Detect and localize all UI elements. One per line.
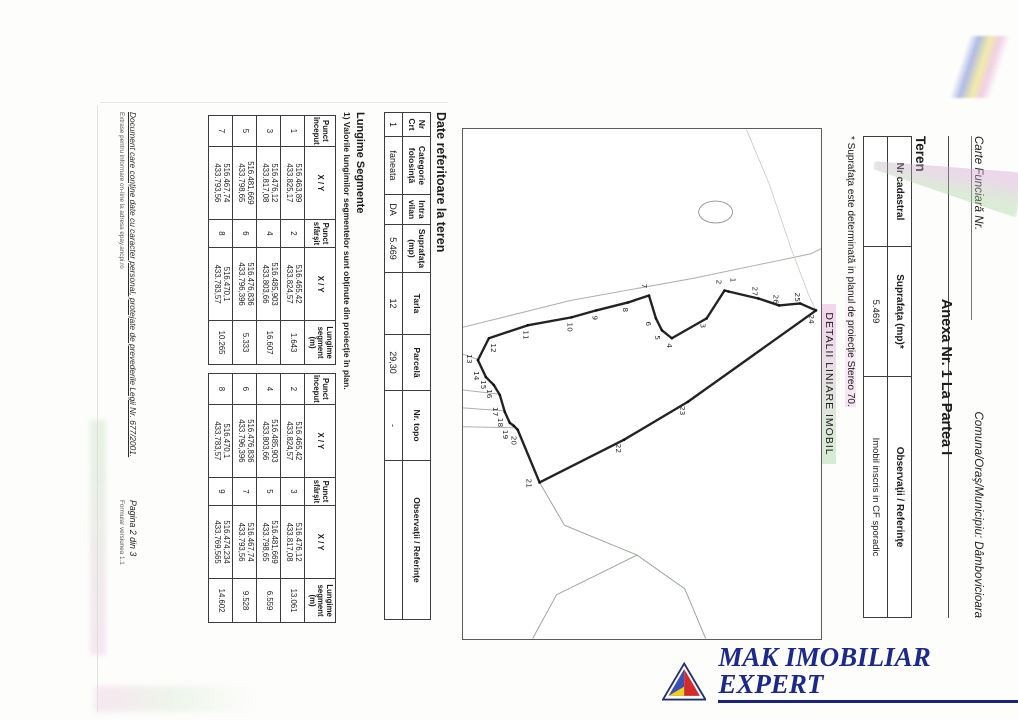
cell-nr-cadastral xyxy=(864,137,888,247)
parcel-boundary-line xyxy=(540,482,706,638)
annex-title: Anexa Nr. 1 La Partea I xyxy=(938,136,954,618)
vertex-point xyxy=(623,438,626,441)
segment-tables: Punct început X / Y Punct sfârşit X / Y … xyxy=(208,115,336,627)
vertex-label: 11 xyxy=(522,330,531,340)
teren-table: Nr cadastral Suprafaţa (mp)* Observaţii … xyxy=(863,136,912,618)
surface-note: * Suprafaţa este determinată in planul d… xyxy=(845,136,856,407)
company-logo-text: MAK IMOBILIAR EXPERT xyxy=(718,644,1018,703)
vertex-point xyxy=(815,309,818,312)
vertex-label: 16 xyxy=(485,389,494,399)
parcel-boundary-line xyxy=(463,427,517,428)
teren-data-row: 5.469 Imobil inscris in CF sporadic xyxy=(864,137,888,618)
vertex-point xyxy=(655,317,658,320)
vertex-point xyxy=(595,309,598,312)
col-suprafata: Suprafaţa (mp)* xyxy=(888,247,912,377)
segments-note: 1) Valorile lungimilor segmentelor sunt … xyxy=(342,112,352,390)
vertex-label: 3 xyxy=(699,323,708,328)
segments-a-header-row: Punct început X / Y Punct sfârşit X / Y … xyxy=(305,116,336,365)
segment-row: 1516.463,89433.825,172516.465,42433.824,… xyxy=(281,116,305,365)
cadastral-plan: 2425262712345678910111213141516171819202… xyxy=(462,128,822,640)
form-version: Formular versiunea 1.1 xyxy=(118,500,125,620)
vertex-label: 13 xyxy=(465,354,474,364)
carte-funciara-label: Carte Funciară Nr. xyxy=(971,136,984,320)
land-data-row: 1 faneata DA 5.469 12 29,30 - xyxy=(385,113,403,620)
col-intravilan: Intra vilan xyxy=(403,195,431,225)
vertex-point xyxy=(727,290,730,293)
vertex-label: 12 xyxy=(489,343,498,352)
vertex-point xyxy=(538,481,541,484)
segment-row: 3516.476,12433.817,084516.485,903433.803… xyxy=(257,116,281,365)
vertex-label: 9 xyxy=(590,315,599,320)
vertex-label: 23 xyxy=(678,406,687,416)
col-nr-topo: Nr. topo xyxy=(403,391,431,461)
vertex-label: 6 xyxy=(644,321,653,326)
plan-detail-ellipse xyxy=(699,201,733,223)
col-nr-cadastral: Nr cadastral xyxy=(888,137,912,247)
teren-header-row: Nr cadastral Suprafaţa (mp)* Observaţii … xyxy=(888,137,912,618)
vertex-label: 19 xyxy=(501,430,510,440)
property-polygon xyxy=(478,291,816,483)
vertex-label: 22 xyxy=(614,444,623,453)
parcel-boundary-line xyxy=(746,129,808,293)
segment-row: 5516.481,669433.798,656516.476,836433.79… xyxy=(233,116,257,365)
vertex-point xyxy=(648,294,651,297)
col-categorie: Categorie folosinţă xyxy=(403,137,431,195)
page-footer: Document care conţine date cu caracter p… xyxy=(118,112,138,620)
col-observatii-ref: Observaţii / Referinţe xyxy=(403,461,431,620)
vertex-point xyxy=(671,337,674,340)
privacy-note: Document care conţine date cu caracter p… xyxy=(128,112,138,477)
vertex-point xyxy=(477,359,480,362)
vertex-point xyxy=(488,337,491,340)
segment-row: 7516.467,74433.793,568516.470,1433.783,5… xyxy=(209,116,233,365)
vertex-label: 24 xyxy=(807,314,816,324)
teren-section-title: Teren xyxy=(913,136,928,172)
vertex-point xyxy=(485,376,488,379)
vertex-point xyxy=(627,301,630,304)
vertex-label: 20 xyxy=(510,436,519,446)
vertex-label: 21 xyxy=(525,478,534,488)
col-tarla: Tarla xyxy=(403,273,431,335)
document-page: Carte Funciară Nr. Comuna/Oraş/Municipiu… xyxy=(0,0,1018,720)
vertex-label: 1 xyxy=(729,278,738,283)
detalii-heading-text: DETALII LINIARE IMOBIL xyxy=(822,304,836,463)
vertex-label: 8 xyxy=(621,307,630,312)
cell-observatii: Imobil inscris in CF sporadic xyxy=(864,377,888,618)
segments-table-a: Punct început X / Y Punct sfârşit X / Y … xyxy=(208,115,336,365)
online-extract-note: Extrase pentru informare on-line la adre… xyxy=(118,112,125,477)
vertex-label: 18 xyxy=(496,418,505,428)
vertex-label: 5 xyxy=(653,335,662,340)
cadastral-plan-drawing: 2425262712345678910111213141516171819202… xyxy=(463,129,821,639)
col-parcela: Parcelă xyxy=(403,335,431,391)
segment-row: 4516.485,903433.803,665516.481,669433.79… xyxy=(257,374,281,623)
detalii-heading: DETALII LINIARE IMOBIL xyxy=(821,128,839,640)
vertex-point xyxy=(757,297,760,300)
vertex-point xyxy=(503,411,506,414)
vertex-point xyxy=(686,401,689,404)
vertex-point xyxy=(493,384,496,387)
vertex-label: 7 xyxy=(640,284,649,289)
comuna-label: Comuna/Oraş/Municipiu: Dâmbovicioara xyxy=(971,412,984,618)
col-nr-crt: Nr Crt xyxy=(403,113,431,137)
vertex-point xyxy=(526,324,529,327)
land-table: Nr Crt Categorie folosinţă Intra vilan S… xyxy=(384,112,431,620)
vertex-point xyxy=(799,302,802,305)
segment-row: 2516.465,42433.824,573516.476,12433.817,… xyxy=(281,374,305,623)
land-header-row: Nr Crt Categorie folosinţă Intra vilan S… xyxy=(403,113,431,620)
vertex-point xyxy=(512,424,515,427)
segment-row: 6516.476,836433.796,3967516.467,74433.79… xyxy=(233,374,257,623)
logo-triangle-icon xyxy=(662,661,706,703)
vertex-point xyxy=(778,304,781,307)
vertex-label: 26 xyxy=(771,295,780,305)
vertex-point xyxy=(508,421,511,424)
segments-section-title: Lungime Segmente xyxy=(354,112,366,213)
vertex-point xyxy=(570,316,573,319)
page-number: Pagina 2 din 3 xyxy=(128,500,138,620)
vertex-point xyxy=(723,289,726,292)
vertex-label: 10 xyxy=(565,322,574,332)
vertex-label: 25 xyxy=(793,293,802,303)
vertex-label: 4 xyxy=(665,343,674,348)
vertex-label: 17 xyxy=(491,407,500,417)
vertex-point xyxy=(705,317,708,320)
cell-suprafata: 5.469 xyxy=(864,247,888,377)
parcel-boundary-line xyxy=(533,555,637,639)
vertex-point xyxy=(499,394,502,397)
segment-row: 8516.470,1433.783,579516.474,234433.769,… xyxy=(209,374,233,623)
col-observatii: Observaţii / Referinţe xyxy=(888,377,912,618)
vertex-point xyxy=(516,428,519,431)
segments-table-b: Punct început X / Y Punct sfârşit X / Y … xyxy=(208,373,336,623)
vertex-label: 27 xyxy=(750,287,759,297)
scan-canvas: Carte Funciară Nr. Comuna/Oraş/Municipiu… xyxy=(0,0,1018,720)
vertex-point xyxy=(661,329,664,332)
company-logo: MAK IMOBILIAR EXPERT xyxy=(662,644,1018,703)
col-suprafata-mp: Suprafaţa (mp) xyxy=(403,225,431,273)
vertex-label: 2 xyxy=(715,280,724,285)
segments-b-header-row: Punct început X / Y Punct sfârşit X / Y … xyxy=(305,374,336,623)
land-section-title: Date referitoare la teren xyxy=(434,112,448,252)
